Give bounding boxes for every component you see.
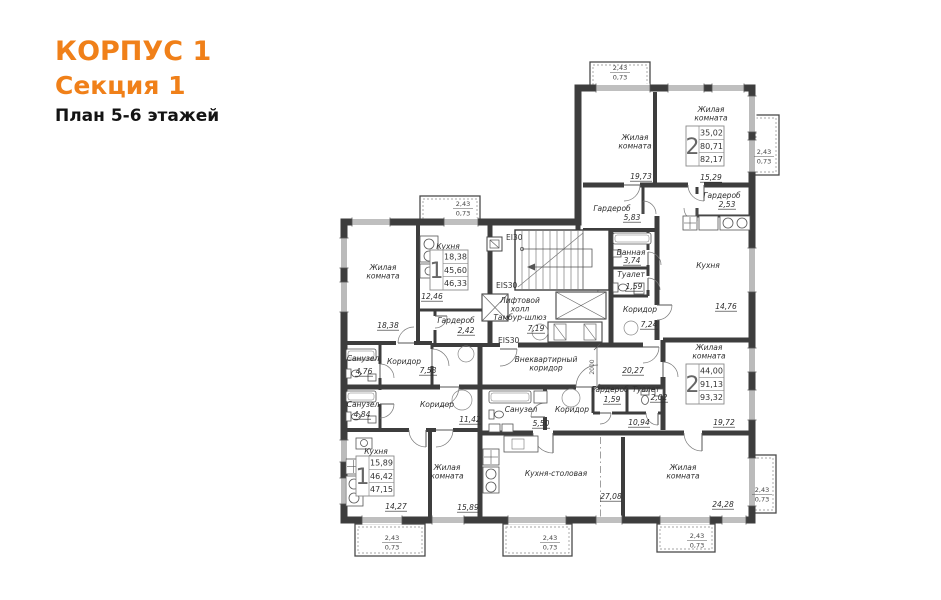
svg-text:46,42: 46,42 xyxy=(370,472,393,481)
door xyxy=(432,349,449,366)
door xyxy=(643,347,659,363)
svg-text:0,73: 0,73 xyxy=(755,496,769,504)
fire-rating-label: EI30 xyxy=(506,233,523,242)
window xyxy=(340,282,349,312)
svg-text:7,24: 7,24 xyxy=(641,320,658,329)
svg-text:27,08: 27,08 xyxy=(600,492,622,501)
svg-text:5,83: 5,83 xyxy=(624,213,641,222)
svg-text:комната: комната xyxy=(430,472,464,481)
door xyxy=(624,185,640,201)
room-label: Коридор11,42 xyxy=(420,400,481,424)
svg-text:EIS30: EIS30 xyxy=(496,281,517,290)
window xyxy=(352,218,390,227)
apartment-stat-table: 118,3845,6046,33 xyxy=(430,250,469,290)
balcony xyxy=(503,524,572,556)
window xyxy=(748,390,757,420)
svg-text:Тамбур-шлюз: Тамбур-шлюз xyxy=(493,313,546,322)
electrical-panel xyxy=(487,237,502,251)
svg-text:комната: комната xyxy=(694,114,728,123)
svg-text:Гардероб: Гардероб xyxy=(437,316,475,325)
apartment-stat-table: 235,0280,7182,17 xyxy=(686,126,725,166)
window xyxy=(748,348,757,372)
room-label: Гардероб5,83 xyxy=(593,204,641,222)
window xyxy=(722,516,746,525)
page: КОРПУС 1 Секция 1 План 5-6 этажей Жилаяк… xyxy=(0,0,941,600)
svg-text:15,89: 15,89 xyxy=(457,503,479,512)
svg-text:Гардероб: Гардероб xyxy=(703,191,741,200)
svg-text:Кухня-столовая: Кухня-столовая xyxy=(525,469,588,478)
room-label: Гардероб2,42 xyxy=(437,316,475,335)
svg-text:EIS30: EIS30 xyxy=(498,336,519,345)
svg-text:2000: 2000 xyxy=(589,359,596,374)
svg-text:20,27: 20,27 xyxy=(622,366,644,375)
svg-text:47,15: 47,15 xyxy=(370,485,393,494)
stairwell xyxy=(515,230,609,290)
window xyxy=(660,516,710,525)
room-label: Гардероб2,53 xyxy=(703,191,741,209)
svg-text:Коридор: Коридор xyxy=(420,400,454,409)
svg-text:18,38: 18,38 xyxy=(377,321,399,330)
svg-text:Гардероб: Гардероб xyxy=(593,204,631,213)
window xyxy=(508,516,566,525)
room-label: 10,94 xyxy=(628,418,650,427)
balcony xyxy=(657,524,715,552)
svg-text:Коридор: Коридор xyxy=(555,405,589,414)
svg-text:5,50: 5,50 xyxy=(533,419,550,428)
svg-text:0,73: 0,73 xyxy=(385,544,399,552)
door xyxy=(380,364,394,378)
svg-text:2,43: 2,43 xyxy=(385,534,399,542)
room-label: Жилаякомната19,73 xyxy=(618,133,652,181)
door xyxy=(398,327,414,343)
svg-text:2,43: 2,43 xyxy=(755,486,769,494)
svg-text:Коридор: Коридор xyxy=(623,305,657,314)
window xyxy=(340,238,349,268)
balcony-dim-label: 2,430,73 xyxy=(610,64,630,82)
svg-text:EI30: EI30 xyxy=(506,233,523,242)
door xyxy=(380,404,394,418)
svg-text:2,43: 2,43 xyxy=(690,532,704,540)
svg-text:2,43: 2,43 xyxy=(613,64,627,72)
elevator-shaft xyxy=(548,292,606,342)
svg-text:2,53: 2,53 xyxy=(719,200,736,209)
svg-text:0,73: 0,73 xyxy=(690,542,704,550)
dimension-label: 2000 xyxy=(589,359,596,374)
room-label: Коридор xyxy=(555,405,589,414)
svg-text:комната: комната xyxy=(692,352,726,361)
door xyxy=(409,430,426,447)
svg-text:18,38: 18,38 xyxy=(444,253,467,262)
room-label: Кухня14,76 xyxy=(696,261,737,311)
svg-text:Кухня: Кухня xyxy=(364,447,388,456)
window xyxy=(596,516,622,525)
svg-text:91,13: 91,13 xyxy=(700,380,723,389)
svg-text:4,84: 4,84 xyxy=(354,410,371,419)
svg-text:комната: комната xyxy=(366,272,400,281)
svg-text:1,59: 1,59 xyxy=(604,395,621,404)
svg-text:2: 2 xyxy=(686,135,700,160)
svg-text:1,59: 1,59 xyxy=(626,282,643,291)
svg-text:46,33: 46,33 xyxy=(444,279,467,288)
window xyxy=(444,218,478,227)
door xyxy=(657,305,672,320)
room-label: ЛифтовойхоллТамбур-шлюз7,19 xyxy=(493,296,546,333)
door xyxy=(643,201,656,214)
floor-plan: Жилаякомната18,38Кухня12,46Гардероб2,42С… xyxy=(0,0,941,600)
svg-text:19,72: 19,72 xyxy=(713,418,735,427)
svg-text:0,73: 0,73 xyxy=(757,158,771,166)
balcony-dim-label: 2,430,73 xyxy=(382,534,402,552)
svg-text:2,43: 2,43 xyxy=(456,200,470,208)
svg-text:Санузел: Санузел xyxy=(505,405,538,414)
window xyxy=(668,84,704,93)
room-label: Ванная3,74 xyxy=(617,248,646,265)
svg-text:93,32: 93,32 xyxy=(700,393,723,402)
svg-text:24,28: 24,28 xyxy=(712,500,734,509)
svg-text:14,76: 14,76 xyxy=(715,302,737,311)
room-label: Коридор7,24 xyxy=(623,305,658,329)
svg-text:0,73: 0,73 xyxy=(613,74,627,82)
balcony-dim-label: 2,430,73 xyxy=(453,200,473,218)
door xyxy=(684,433,702,451)
svg-text:Кухня: Кухня xyxy=(696,261,720,270)
svg-text:коридор: коридор xyxy=(529,364,563,373)
apartment-stat-table: 115,8946,4247,15 xyxy=(356,456,395,496)
door xyxy=(600,413,611,424)
apartment-stat-table: 244,0091,1393,32 xyxy=(686,364,725,404)
svg-text:2,02: 2,02 xyxy=(651,393,668,402)
svg-text:12,46: 12,46 xyxy=(421,292,443,301)
svg-text:Коридор: Коридор xyxy=(387,357,421,366)
svg-text:19,73: 19,73 xyxy=(630,172,652,181)
window xyxy=(748,248,757,292)
svg-text:7,19: 7,19 xyxy=(528,324,545,333)
room-label: Гардероб1,59 xyxy=(591,385,629,404)
window xyxy=(596,84,650,93)
svg-text:15,29: 15,29 xyxy=(700,173,722,182)
svg-text:1: 1 xyxy=(356,465,370,490)
svg-text:10,94: 10,94 xyxy=(628,418,650,427)
svg-text:Санузел: Санузел xyxy=(347,354,380,363)
svg-text:2,43: 2,43 xyxy=(543,534,557,542)
svg-text:3,74: 3,74 xyxy=(624,256,641,265)
svg-text:80,71: 80,71 xyxy=(700,142,723,151)
balcony-dim-label: 2,430,73 xyxy=(540,534,560,552)
balcony-dim-label: 2,430,73 xyxy=(754,148,774,166)
svg-text:82,17: 82,17 xyxy=(700,155,723,164)
svg-text:комната: комната xyxy=(666,472,700,481)
svg-text:7,58: 7,58 xyxy=(420,366,437,375)
svg-text:4,76: 4,76 xyxy=(356,367,373,376)
svg-text:комната: комната xyxy=(618,142,652,151)
room-label: Жилаякомната18,38 xyxy=(366,263,400,330)
svg-text:0,73: 0,73 xyxy=(456,210,470,218)
svg-text:0,73: 0,73 xyxy=(543,544,557,552)
svg-text:Санузел: Санузел xyxy=(347,400,380,409)
window xyxy=(748,140,757,172)
room-label: Жилаякомната24,28 xyxy=(666,463,734,509)
svg-text:44,00: 44,00 xyxy=(700,367,723,376)
fire-rating-label: EIS30 xyxy=(498,336,519,345)
balcony-dim-label: 2,430,73 xyxy=(687,532,707,550)
svg-text:1: 1 xyxy=(430,259,444,284)
svg-text:15,89: 15,89 xyxy=(370,459,393,468)
room-label: Жилаякомната15,89 xyxy=(430,463,479,512)
fire-rating-label: EIS30 xyxy=(496,281,517,290)
svg-text:Гардероб: Гардероб xyxy=(591,385,629,394)
door xyxy=(663,362,678,377)
svg-text:11,42: 11,42 xyxy=(459,415,481,424)
room-label: Коридор7,58 xyxy=(387,357,437,375)
door xyxy=(436,430,453,447)
svg-text:35,02: 35,02 xyxy=(700,129,723,138)
room-label: Внеквартирныйкоридор20,27 xyxy=(515,355,644,375)
window xyxy=(362,516,402,525)
room-label: Кухня-столовая27,08 xyxy=(525,469,622,501)
window xyxy=(432,516,464,525)
svg-text:2: 2 xyxy=(686,373,700,398)
window xyxy=(748,96,757,132)
svg-text:2,43: 2,43 xyxy=(757,148,771,156)
balcony xyxy=(753,115,779,175)
balcony-dim-label: 2,430,73 xyxy=(752,486,772,504)
svg-text:2,42: 2,42 xyxy=(458,326,475,335)
svg-text:45,60: 45,60 xyxy=(444,266,467,275)
svg-text:Туалет: Туалет xyxy=(617,270,645,279)
svg-text:14,27: 14,27 xyxy=(385,502,407,511)
window xyxy=(712,84,744,93)
